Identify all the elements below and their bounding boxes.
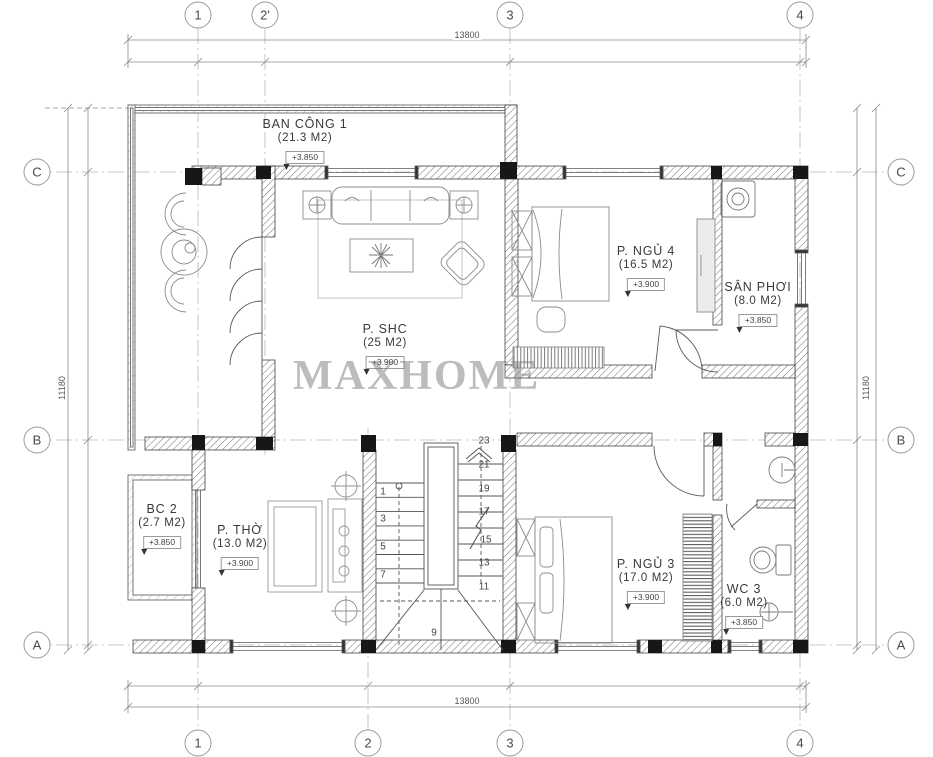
bed	[535, 517, 612, 643]
stair-step-number: 7	[380, 570, 386, 581]
room-name: P. THỜ	[213, 523, 268, 537]
room-area: (16.5 M2)	[617, 259, 675, 271]
bedroom3-furniture	[517, 514, 712, 643]
grid-bubble-left-c: C	[24, 159, 51, 186]
maxhome-watermark: MAXHOME	[293, 352, 540, 400]
dimension-left: 11180	[57, 374, 67, 402]
stair-step-number: 21	[478, 460, 489, 471]
room-area: (21.3 M2)	[262, 132, 347, 144]
room-area: (8.0 M2)	[724, 295, 791, 307]
level-tag: +3.850	[739, 314, 777, 327]
grid-bubble-top-4: 4	[787, 2, 814, 29]
room-label-ban-cong-1: BAN CÔNG 1 (21.3 M2) +3.850	[262, 117, 347, 165]
door-wc3	[727, 504, 757, 530]
stairs-group	[376, 443, 503, 650]
bedroom4-furniture	[512, 207, 715, 368]
grid-bubble-top-1: 1	[185, 2, 212, 29]
room-name: SÂN PHƠI	[724, 280, 791, 294]
balcony-chairs	[161, 193, 207, 312]
crossed-circle-icon	[331, 471, 361, 501]
level-tag: +3.850	[286, 151, 324, 164]
room-name: BAN CÔNG 1	[262, 117, 347, 131]
dimension-bottom: 13800	[452, 696, 481, 706]
room-name: BC 2	[138, 502, 186, 516]
room-area: (6.0 M2)	[720, 597, 768, 609]
worship-room-furniture	[268, 499, 362, 592]
level-tag: +3.900	[221, 557, 259, 570]
room-label-wc-3: WC 3 (6.0 M2) +3.850	[720, 582, 768, 630]
room-label-bc-2: BC 2 (2.7 M2) +3.850	[138, 502, 186, 550]
wc-and-yard-fixtures	[721, 181, 795, 621]
room-name: P. NGỦ 3	[617, 557, 675, 571]
grid-bubble-left-b: B	[24, 427, 51, 454]
bed	[532, 207, 609, 301]
level-tag: +3.900	[627, 591, 665, 604]
dimension-right: 11180	[861, 374, 871, 402]
armchair	[438, 239, 487, 288]
room-label-p-ngu-3: P. NGỦ 3 (17.0 M2) +3.900	[617, 557, 675, 605]
level-tag: +3.850	[143, 536, 181, 549]
pouf	[537, 307, 565, 332]
round-table	[161, 229, 207, 275]
level-tag: +3.850	[725, 616, 763, 629]
room-area: (17.0 M2)	[617, 572, 675, 584]
room-label-san-phoi: SÂN PHƠI (8.0 M2) +3.850	[724, 280, 791, 328]
stair-step-number: 15	[480, 535, 491, 546]
living-room-furniture	[161, 187, 487, 312]
crossed-circle-icon	[331, 596, 361, 626]
level-tag: +3.900	[627, 278, 665, 291]
floor-plan-canvas: 1 2' 3 4 1 2 3 4 C B A C B A 13800 13800…	[0, 0, 933, 757]
room-area: (25 M2)	[363, 337, 408, 349]
grid-bubble-bottom-4: 4	[787, 730, 814, 757]
door-bedroom3	[654, 446, 704, 496]
room-area: (2.7 M2)	[138, 517, 186, 529]
stair-step-number: 19	[478, 484, 489, 495]
wardrobe	[697, 219, 715, 312]
stair-step-number: 23	[478, 436, 489, 447]
room-name: P. NGỦ 4	[617, 244, 675, 258]
grid-bubble-right-c: C	[888, 159, 915, 186]
stair-step-number: 17	[478, 507, 489, 518]
grid-bubble-left-a: A	[24, 632, 51, 659]
grid-bubble-bottom-2: 2	[355, 730, 382, 757]
grid-bubble-bottom-3: 3	[497, 730, 524, 757]
stair-step-number: 1	[380, 487, 386, 498]
plant	[369, 243, 393, 268]
room-area: (13.0 M2)	[213, 538, 268, 550]
wardrobe	[683, 514, 712, 641]
stair-step-number: 11	[479, 582, 489, 593]
stair-step-number: 9	[431, 628, 437, 639]
stair-step-number: 5	[380, 542, 386, 553]
toilet-tank	[776, 545, 791, 575]
stair-step-number: 13	[478, 558, 489, 569]
grid-bubble-right-a: A	[888, 632, 915, 659]
door-bedroom4	[655, 326, 702, 371]
pillow	[540, 527, 553, 567]
room-name: P. SHC	[363, 322, 408, 336]
grid-bubble-top-2p: 2'	[252, 2, 279, 29]
folding-door-balcony	[230, 237, 262, 365]
rug	[318, 200, 462, 298]
room-label-p-tho: P. THỜ (13.0 M2) +3.900	[213, 523, 268, 571]
washing-machine	[721, 181, 755, 217]
grid-bubble-bottom-1: 1	[185, 730, 212, 757]
grid-bubble-right-b: B	[888, 427, 915, 454]
stair-step-number: 3	[380, 514, 386, 525]
room-name: WC 3	[720, 582, 768, 596]
column-symbols	[331, 471, 361, 626]
sofa	[332, 187, 449, 224]
altar-table	[268, 501, 322, 592]
dimension-top: 13800	[452, 30, 481, 40]
room-label-p-ngu-4: P. NGỦ 4 (16.5 M2) +3.900	[617, 244, 675, 292]
grid-bubble-top-3: 3	[497, 2, 524, 29]
pillow	[540, 573, 553, 613]
